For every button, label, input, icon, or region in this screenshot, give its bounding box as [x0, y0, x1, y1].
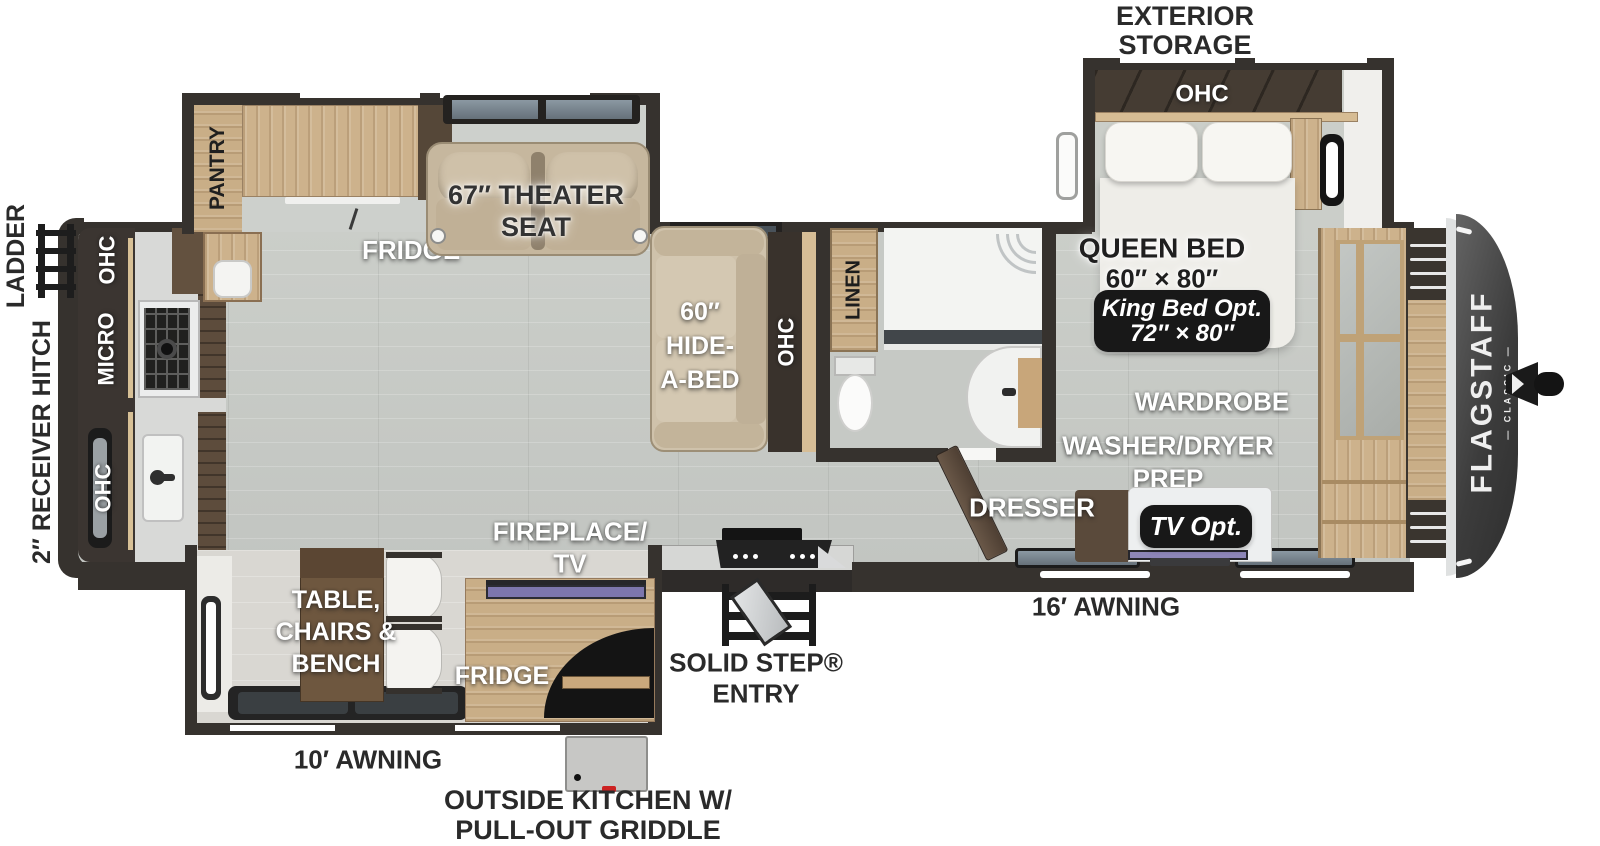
griddle-dot-5: [800, 554, 805, 559]
rear-cabinet-trim-2: [128, 412, 133, 550]
awning-strip-2: [1240, 571, 1350, 578]
bath-wall-left: [816, 222, 830, 462]
rear-cabinet-trim-1: [128, 238, 133, 398]
label-ladder: LADDER: [3, 204, 29, 308]
bottom-wall-rear: [78, 562, 192, 590]
kitchen-corner-sink: [213, 260, 252, 298]
wardrobe-mirror-stile: [1356, 240, 1364, 440]
label-entry-1: SOLID STEP®: [669, 649, 843, 676]
bath-wall-right: [1042, 222, 1056, 462]
griddle-dot-4: [790, 554, 795, 559]
bedroom-slide-right-wall-white: [1344, 70, 1382, 232]
awning-strip-4: [455, 725, 560, 731]
bedroom-window-right-glass: [1326, 142, 1338, 198]
bedroom-slide-wall-left: [1083, 58, 1095, 232]
stove-burner: [157, 339, 177, 359]
label-exterior-storage-2: STORAGE: [1118, 31, 1251, 59]
label-queen-2: 60″ × 80″: [1106, 265, 1218, 292]
label-awning-16: 16′ AWNING: [1032, 593, 1180, 620]
slide-accent-4: [1255, 58, 1367, 63]
toilet-bowl: [837, 374, 873, 432]
brand-logo: FLAGSTAFF — CLASSIC —: [1466, 290, 1513, 493]
label-tv-opt: TV Opt.: [1150, 513, 1242, 540]
bedroom-window-left-ext: [1056, 132, 1078, 200]
label-wardrobe: WARDROBE: [1135, 388, 1290, 415]
label-hab-3: A-BED: [660, 367, 739, 393]
label-dresser: DRESSER: [969, 494, 1095, 521]
fireplace-tv-screen: [486, 585, 646, 599]
griddle-knob: [574, 774, 581, 781]
kitchen-drawer-column: [198, 294, 226, 560]
bed-pillow-2: [1202, 122, 1292, 182]
fridge-toe-kick: [285, 197, 400, 204]
tv-option-badge: TV Opt.: [1140, 505, 1252, 548]
label-bedroom-ohc: OHC: [1175, 81, 1228, 106]
entry-steps: [720, 580, 818, 648]
label-hab-2: HIDE-: [666, 333, 734, 359]
label-awning-10: 10′ AWNING: [294, 746, 442, 773]
shower-glass-wall: [884, 330, 1042, 344]
label-linen: LINEN: [844, 260, 865, 320]
label-washer-dryer-1: WASHER/DRYER: [1062, 432, 1273, 459]
hitch-jack-handle: [1534, 372, 1564, 396]
label-table-1: TABLE,: [292, 587, 380, 613]
fireplace-shelf: [562, 676, 650, 689]
label-queen-1: QUEEN BED: [1079, 233, 1245, 262]
tv-base: [1150, 558, 1230, 566]
pantry-fridge-cabinet: [242, 105, 420, 197]
label-theater-1: 67″ THEATER: [448, 181, 624, 209]
dinette-chair-1: [386, 552, 442, 622]
sofa-ohc-trim: [802, 232, 816, 452]
theater-window-pane-1: [452, 100, 538, 119]
label-entry-2: ENTRY: [712, 680, 799, 707]
bath-wall-bottom-2: [996, 448, 1056, 462]
awning-strip-3: [230, 725, 335, 731]
label-fireplace-1: FIREPLACE/: [493, 518, 648, 545]
dinette-window-glass: [206, 602, 216, 694]
chair-1-frame-top: [386, 552, 442, 558]
griddle-dot-1: [733, 554, 738, 559]
kitchen-faucet-stub: [161, 474, 175, 481]
label-outside-kitchen-2: PULL-OUT GRIDDLE: [455, 816, 720, 844]
griddle-dot-2: [743, 554, 748, 559]
vanity-faucet: [1002, 388, 1016, 396]
griddle-dot-6: [810, 554, 815, 559]
brand-name: FLAGSTAFF: [1466, 290, 1500, 493]
label-table-2: CHAIRS &: [276, 619, 397, 645]
pantry-slide-wall-left: [182, 93, 194, 234]
label-fridge-dinette: FRIDGE: [455, 663, 549, 689]
label-sofa-ohc: OHC: [774, 318, 797, 367]
griddle-dot-3: [753, 554, 758, 559]
bedroom-slide-wall-right: [1382, 58, 1394, 232]
label-king-1: King Bed Opt.: [1102, 296, 1262, 321]
bath-wall-bottom-1: [816, 448, 948, 462]
floorplan-diagram: OHC MICRO OHC LADDER 2″ RECEIVER HITCH P…: [0, 0, 1600, 846]
theater-window-pane-2: [546, 100, 632, 119]
wardrobe-drawer-line-2: [1322, 520, 1406, 524]
ladder-icon: [36, 224, 76, 298]
wardrobe-mirror-divider: [1336, 334, 1404, 342]
dinette-slide-wall-left: [185, 545, 197, 735]
label-exterior-storage-1: EXTERIOR: [1116, 2, 1254, 30]
awning-strip-1: [1040, 571, 1150, 578]
pull-out-griddle: [565, 736, 648, 792]
label-fireplace-2: TV: [553, 550, 586, 577]
kitchen-drawer-gap: [198, 398, 226, 412]
label-receiver-hitch: 2″ RECEIVER HITCH: [29, 320, 55, 564]
label-hab-1: 60″: [680, 299, 720, 325]
toilet-tank: [834, 356, 876, 376]
king-bed-option-badge: King Bed Opt. 72″ × 80″: [1094, 290, 1270, 352]
slide-accent-1: [300, 93, 420, 98]
label-micro: MICRO: [94, 312, 117, 385]
label-pantry: PANTRY: [207, 126, 229, 210]
label-ohc-rear: OHC: [95, 236, 118, 285]
chair-2-frame-bottom: [386, 688, 442, 694]
label-ohc-sink: OHC: [91, 464, 114, 513]
label-theater-2: SEAT: [501, 213, 571, 241]
label-king-2: 72″ × 80″: [1130, 321, 1234, 346]
wardrobe-drawer-line-1: [1322, 480, 1406, 484]
bed-pillow-1: [1105, 122, 1198, 182]
dinette-bench: [300, 548, 384, 578]
vanity-shelf: [1018, 358, 1042, 428]
label-table-3: BENCH: [292, 651, 381, 677]
label-outside-kitchen-1: OUTSIDE KITCHEN W/: [444, 786, 732, 814]
